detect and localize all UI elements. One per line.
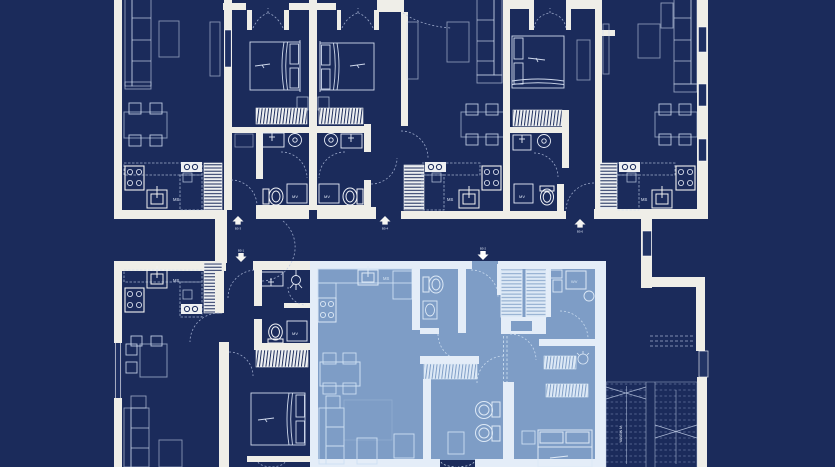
svg-text:B5-6: B5-6 — [577, 230, 584, 234]
svg-text:B5-1: B5-1 — [238, 249, 245, 253]
svg-text:MV: MV — [292, 194, 298, 199]
svg-text:MS: MS — [173, 197, 179, 202]
svg-text:WV: WV — [571, 279, 578, 284]
svg-text:MV: MV — [292, 331, 298, 336]
svg-text:B5-2: B5-2 — [480, 247, 487, 251]
svg-text:B5-4: B5-4 — [382, 227, 389, 231]
svg-text:MS: MS — [383, 276, 389, 281]
svg-text:MV: MV — [324, 194, 330, 199]
svg-text:MS: MS — [641, 197, 647, 202]
svg-text:YANGIN M.: YANGIN M. — [619, 425, 623, 443]
svg-text:MS: MS — [447, 197, 453, 202]
svg-text:B5-3: B5-3 — [235, 227, 242, 231]
svg-text:MV: MV — [519, 194, 525, 199]
